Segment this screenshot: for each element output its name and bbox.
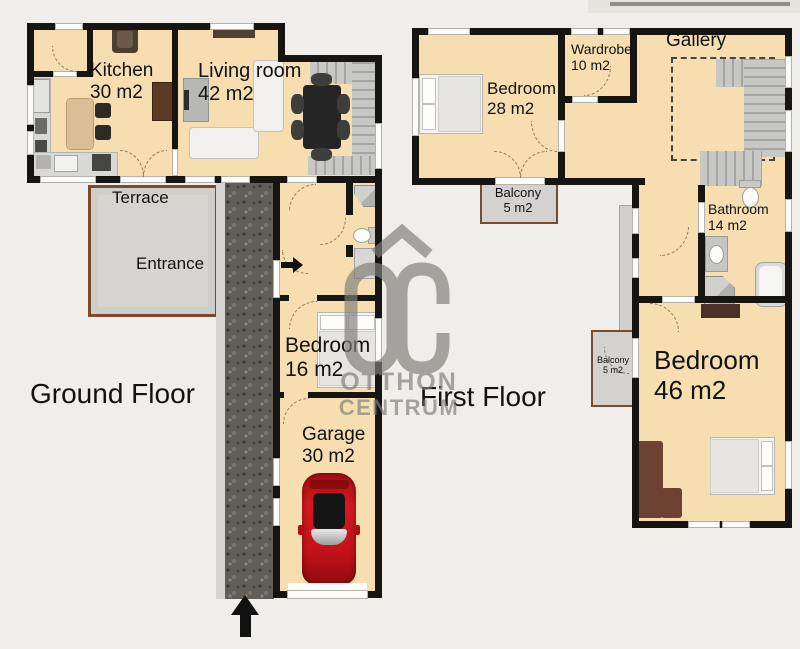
- room-name: Balcony: [480, 186, 556, 201]
- stairs-ground: [352, 58, 377, 170]
- kitchen-table-icon: [66, 98, 94, 150]
- watermark-line1: OTTHON: [340, 368, 458, 396]
- monogram-c: [401, 269, 443, 368]
- window-opening: [55, 23, 83, 30]
- dining-chair-icon: [311, 148, 332, 161]
- bathroom-label: Bathroom 14 m2: [708, 201, 769, 233]
- window-opening: [785, 56, 792, 88]
- wall-segment: [698, 233, 705, 303]
- window-opening: [221, 176, 250, 183]
- bed-pillow: [422, 78, 436, 104]
- bed-pillow: [761, 466, 773, 491]
- wall-segment: [632, 296, 662, 303]
- room-area: 14 m2: [708, 217, 769, 233]
- room-name: Terrace: [112, 188, 169, 208]
- dining-table-icon: [303, 85, 341, 149]
- wall-segment: [698, 185, 705, 202]
- window-opening: [785, 199, 792, 232]
- room-area: 42 m2: [198, 83, 301, 106]
- window-opening: [632, 208, 639, 234]
- garage-label: Garage 30 m2: [302, 424, 365, 468]
- dining-chair-icon: [291, 120, 304, 140]
- window-opening: [688, 521, 720, 528]
- room-area: 30 m2: [90, 82, 153, 104]
- room-name: Wardrobe: [571, 41, 632, 57]
- window-opening: [722, 521, 750, 528]
- window-opening: [287, 590, 368, 599]
- roof-icon: [375, 231, 429, 254]
- bed-pillow: [422, 104, 436, 130]
- wall-segment: [695, 296, 792, 303]
- room-area: 10 m2: [571, 57, 632, 73]
- dresser-icon: [701, 304, 740, 318]
- window-opening: [27, 131, 34, 155]
- window-opening: [572, 96, 598, 103]
- window-opening: [40, 176, 96, 183]
- driveway-edge: [216, 183, 225, 599]
- window-opening: [662, 296, 695, 303]
- living-room-label: Living room 42 m2: [198, 60, 301, 106]
- room-name: Bedroom: [654, 346, 760, 376]
- kitchen-sink-item: [36, 155, 51, 169]
- car-roof: [313, 493, 345, 529]
- kitchen-chair-icon: [95, 125, 111, 140]
- window-opening: [273, 260, 280, 298]
- driveway-entry-arrow-head: [231, 595, 259, 615]
- sofa-icon: [189, 127, 259, 159]
- room-area: 5 m2: [480, 201, 556, 216]
- kitchen-sink-icon: [54, 155, 78, 172]
- bed-pillow: [761, 441, 773, 466]
- window-opening: [571, 28, 598, 35]
- wall-segment: [172, 23, 178, 149]
- window-opening: [698, 202, 705, 233]
- window-opening: [120, 176, 166, 183]
- dining-chair-icon: [337, 120, 350, 140]
- dining-chair-icon: [311, 73, 332, 86]
- floorplan-canvas: Kitchen 30 m2 Living room 42 m2 Terrace …: [0, 0, 800, 649]
- bed-blanket: [438, 76, 481, 132]
- monogram-o: [351, 269, 393, 368]
- wardrobe-label: Wardrobe 10 m2: [571, 41, 632, 73]
- armchair-cushion: [117, 31, 133, 48]
- room-name: Bedroom: [487, 79, 556, 99]
- balcony-upper-label: Balcony 5 m2: [480, 186, 556, 216]
- room-area: 5 m2: [591, 365, 635, 375]
- driveway: [225, 183, 274, 599]
- entrance-arrow-head: [293, 257, 303, 273]
- window-opening: [210, 23, 254, 30]
- wall-segment: [412, 178, 495, 185]
- kitchen-hob-icon: [92, 154, 111, 171]
- terrace-label: Terrace: [112, 188, 169, 208]
- fridge-icon: [32, 79, 50, 113]
- car-mirror: [298, 525, 304, 535]
- window-opening: [172, 149, 178, 176]
- kitchen-label: Kitchen 30 m2: [90, 60, 153, 104]
- wall-segment: [558, 96, 572, 103]
- wall-segment: [598, 96, 637, 103]
- dining-chair-icon: [337, 94, 350, 114]
- counter-appliance: [35, 118, 47, 134]
- room-name: Bathroom: [708, 201, 769, 217]
- roof-edge-line: [610, 2, 790, 6]
- room-name: Garage: [302, 424, 365, 446]
- bed-blanket: [710, 439, 759, 493]
- window-opening: [27, 85, 34, 125]
- window-opening: [375, 123, 382, 169]
- sink-basin: [709, 245, 724, 264]
- window-opening: [603, 28, 630, 35]
- wall-segment: [273, 392, 284, 398]
- room-name: Balcony: [591, 355, 635, 365]
- room-name: Living room: [198, 60, 301, 83]
- window-opening: [495, 177, 545, 185]
- kitchen-chair-icon: [95, 103, 111, 118]
- car-mirror: [354, 525, 360, 535]
- window-opening: [185, 176, 215, 183]
- bedroom28-label: Bedroom 28 m2: [487, 79, 556, 118]
- room-name: Gallery: [666, 30, 726, 52]
- wall-segment: [273, 183, 280, 598]
- window-opening: [785, 441, 792, 489]
- room-area: 46 m2: [654, 376, 760, 406]
- balcony-lower-label: Balcony 5 m2: [591, 355, 635, 376]
- wall-segment: [558, 152, 565, 185]
- ground-floor-title: Ground Floor: [30, 378, 195, 410]
- car-icon: [302, 473, 356, 585]
- tv-screen-icon: [184, 90, 189, 110]
- bedroom46-label: Bedroom 46 m2: [654, 346, 760, 406]
- room-area: 30 m2: [302, 446, 365, 468]
- window-opening: [273, 498, 280, 526]
- car-rear-window: [309, 480, 349, 489]
- window-opening: [412, 78, 419, 136]
- gallery-label: Gallery: [666, 30, 726, 52]
- room-name: Entrance: [136, 254, 204, 274]
- window-opening: [558, 120, 565, 152]
- window-opening: [785, 110, 792, 152]
- window-opening: [53, 71, 77, 77]
- window-opening: [273, 458, 280, 486]
- room-area: 28 m2: [487, 99, 556, 119]
- otthon-centrum-watermark-logo: OTTHON CENTRUM: [330, 222, 470, 422]
- wall-segment: [632, 378, 639, 528]
- wall-segment: [558, 28, 565, 120]
- window-opening: [632, 258, 639, 278]
- wall-segment: [346, 183, 353, 215]
- corner-sofa-icon: [661, 488, 682, 518]
- window-opening: [287, 176, 317, 183]
- watermark-line2: CENTRUM: [339, 395, 460, 420]
- driveway-entry-arrow-shaft: [240, 614, 251, 637]
- stairs-first: [744, 59, 785, 157]
- entrance-label: Entrance: [136, 254, 204, 274]
- window-opening: [428, 28, 470, 35]
- corner-sofa-icon: [637, 441, 663, 518]
- room-name: Kitchen: [90, 60, 153, 82]
